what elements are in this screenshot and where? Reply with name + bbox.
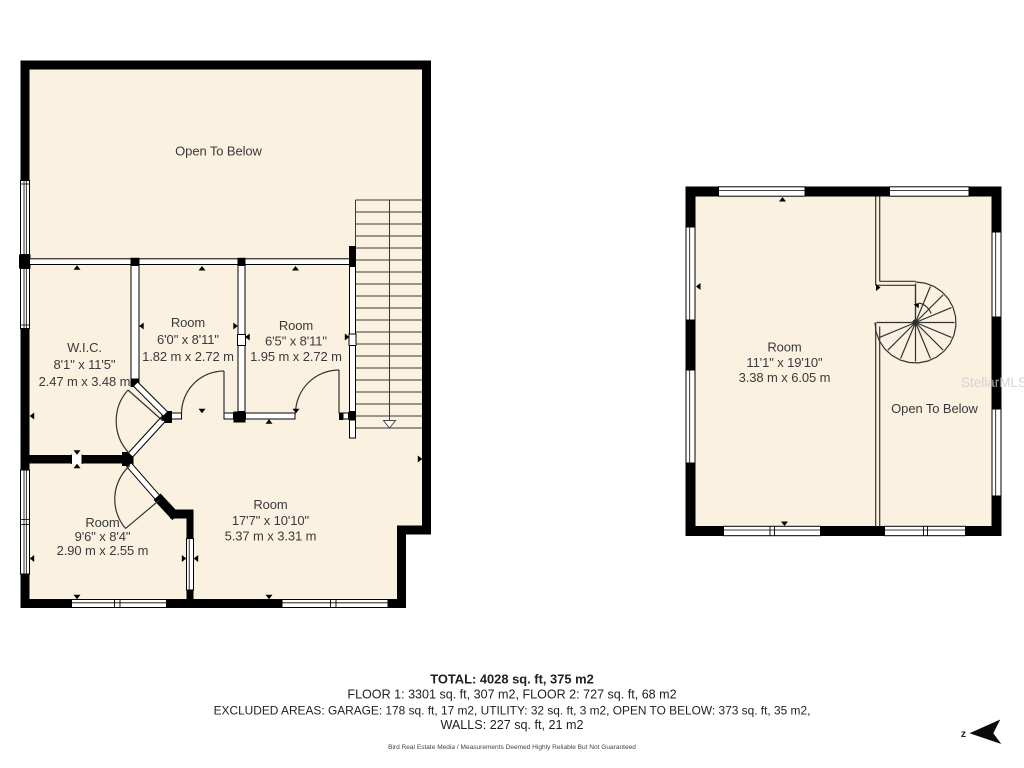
svg-text:8'1" x 11'5": 8'1" x 11'5" xyxy=(54,357,116,372)
svg-text:6'0" x 8'11": 6'0" x 8'11" xyxy=(157,332,219,347)
svg-text:2.90 m x 2.55 m: 2.90 m x 2.55 m xyxy=(57,543,149,558)
svg-text:9'6" x 8'4": 9'6" x 8'4" xyxy=(75,529,131,544)
svg-text:3.38 m x 6.05 m: 3.38 m x 6.05 m xyxy=(739,370,831,385)
svg-text:1.95 m x 2.72 m: 1.95 m x 2.72 m xyxy=(250,349,342,364)
svg-text:EXCLUDED AREAS: GARAGE: 178 sq: EXCLUDED AREAS: GARAGE: 178 sq. ft, 17 m… xyxy=(214,704,811,718)
svg-text:Room: Room xyxy=(767,340,801,355)
svg-text:FLOOR 1: 3301 sq. ft, 307 m2,: FLOOR 1: 3301 sq. ft, 307 m2, FLOOR 2: 7… xyxy=(347,688,676,702)
svg-text:z: z xyxy=(961,728,966,740)
svg-text:2.47 m x 3.48 m: 2.47 m x 3.48 m xyxy=(39,374,131,389)
svg-text:Open To Below: Open To Below xyxy=(891,401,978,416)
svg-text:Room: Room xyxy=(85,515,119,530)
svg-text:TOTAL: 4028 sq. ft, 375 m2: TOTAL: 4028 sq. ft, 375 m2 xyxy=(430,672,594,687)
svg-text:6'5" x 8'11": 6'5" x 8'11" xyxy=(265,334,327,349)
svg-text:W.I.C.: W.I.C. xyxy=(67,340,102,355)
svg-text:WALLS: 227 sq. ft, 21 m2: WALLS: 227 sq. ft, 21 m2 xyxy=(440,718,583,732)
svg-text:Room: Room xyxy=(171,315,205,330)
svg-text:Room: Room xyxy=(279,318,313,333)
svg-text:Bird Real Estate Media / Measu: Bird Real Estate Media / Measurements De… xyxy=(388,744,636,751)
svg-text:Room: Room xyxy=(253,497,287,512)
svg-text:StellarMLS: StellarMLS xyxy=(961,375,1024,390)
svg-text:1.82 m x 2.72 m: 1.82 m x 2.72 m xyxy=(142,349,234,364)
svg-text:11'1" x 19'10": 11'1" x 19'10" xyxy=(746,355,823,370)
svg-text:5.37 m x 3.31 m: 5.37 m x 3.31 m xyxy=(225,529,317,544)
svg-text:17'7" x 10'10": 17'7" x 10'10" xyxy=(232,513,310,528)
svg-text:Open To Below: Open To Below xyxy=(175,144,262,159)
